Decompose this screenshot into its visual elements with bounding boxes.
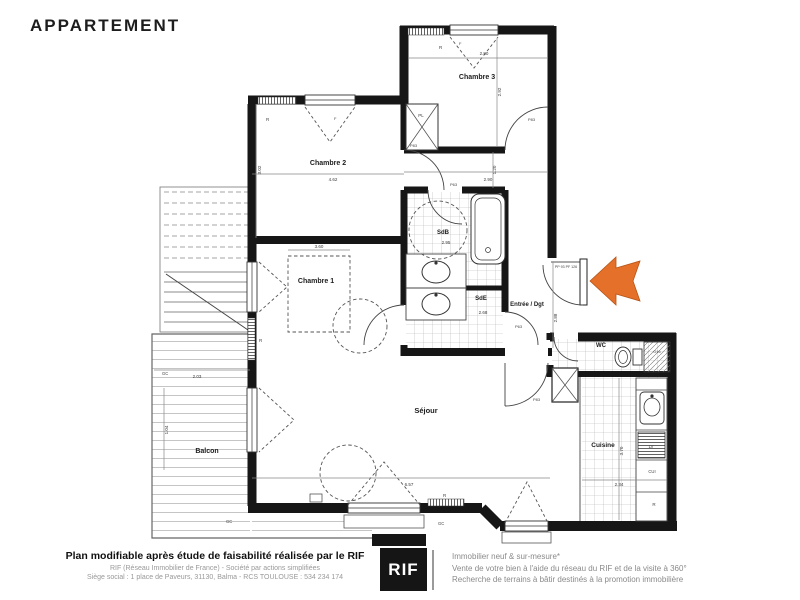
- footer-company-line2: Siège social : 1 place de Paveurs, 31130…: [60, 573, 370, 582]
- dim-sdb: 2.95: [442, 240, 451, 245]
- dim-bed: 3.60: [315, 244, 324, 249]
- window-chambre1: [247, 262, 287, 312]
- label-dishwasher: LV: [649, 444, 654, 449]
- dim-chambre3-w: 2.80: [480, 51, 489, 56]
- radiator-chambre2: [258, 97, 296, 104]
- bed-chambre1: [288, 256, 350, 332]
- label-radiator-ch3: R: [439, 45, 443, 50]
- label-window-ch2: F: [334, 116, 337, 121]
- door-chambre2: [404, 150, 444, 190]
- label-guardrail-3: GC: [438, 521, 444, 526]
- dim-hall-w: 2.90: [484, 177, 493, 182]
- dim-entree-h: 2.88: [553, 313, 558, 322]
- footer-company-line1: RIF (Réseau Immobilier de France) - Soci…: [60, 564, 370, 573]
- technical-shaft: [552, 368, 578, 402]
- rif-logo: RIF: [380, 548, 427, 591]
- window-cuisine-side: [502, 482, 551, 543]
- footer-left: Plan modifiable après étude de faisabili…: [60, 550, 370, 582]
- label-radiator-ch2: R: [266, 117, 270, 122]
- label-entree: Entrée / Dgt: [510, 302, 544, 308]
- dim-cuisine-w: 2.34: [615, 482, 624, 487]
- double-washbasin: [406, 254, 466, 320]
- dim-chambre2-h: 3.02: [257, 165, 262, 174]
- label-p63-sde: P63: [515, 324, 523, 329]
- circle-chambre1: [333, 299, 387, 353]
- dim-sejour-w: 6.57: [405, 482, 414, 487]
- label-cuisine: Cuisine: [591, 442, 615, 449]
- outlet-box: [310, 494, 322, 502]
- label-closet: PL: [418, 113, 424, 118]
- label-cooker: CUI: [648, 469, 655, 474]
- radiator-chambre3: [408, 28, 444, 35]
- dim-chambre2-w: 4.62: [329, 177, 338, 182]
- radiator-sejour: [428, 499, 464, 506]
- footer-service-1: Immobilier neuf & sur-mesure*: [452, 551, 687, 563]
- window-chambre3: [450, 25, 498, 68]
- label-guardrail-2: GC: [226, 519, 232, 524]
- dim-chambre3-h: 2.92: [497, 87, 502, 96]
- label-wc: WC: [596, 343, 607, 349]
- dim-balcon-h: 1.04: [164, 425, 169, 434]
- entrance-arrow: [590, 257, 640, 305]
- label-entry-door: PP 93 PF 126: [555, 265, 577, 269]
- window-chambre2: [305, 95, 355, 142]
- label-shaft: O16: [653, 350, 660, 354]
- page: { "header": { "title": "APPARTEMENT" }, …: [0, 0, 800, 600]
- dim-cuisine-h: 3.70: [619, 446, 624, 455]
- footer: Plan modifiable après étude de faisabili…: [0, 546, 800, 600]
- footer-separator: [432, 550, 434, 590]
- footer-service-2: Vente de votre bien à l'aide du réseau d…: [452, 563, 687, 575]
- exterior-stair: [160, 187, 250, 332]
- circle-sejour: [320, 445, 376, 501]
- wc-cabinet: [644, 342, 670, 372]
- label-radiator-sejour: R: [443, 493, 447, 498]
- bathtub: [471, 194, 505, 264]
- label-sdb: SdB: [437, 230, 450, 236]
- toilet: [615, 347, 642, 367]
- dim-sde: 2.68: [479, 310, 488, 315]
- label-p63-sdb: P63: [450, 182, 458, 187]
- label-radiator-ch1: R: [259, 338, 263, 343]
- dim-balcon-w: 2.03: [193, 374, 202, 379]
- kitchen-counter: [636, 378, 667, 521]
- label-balcon: Balcon: [195, 448, 218, 455]
- label-chambre3: Chambre 3: [459, 74, 495, 81]
- balcony-door-sejour: [247, 388, 294, 452]
- label-p83-ch2: P83: [410, 143, 418, 148]
- french-window-sejour: [344, 462, 424, 528]
- radiator-chambre1: [248, 318, 255, 360]
- label-guardrail-1: GC: [162, 371, 168, 376]
- label-p83-ch3: P83: [528, 117, 536, 122]
- pillar: [372, 534, 426, 546]
- label-chambre1: Chambre 1: [298, 278, 334, 285]
- label-sde: SdE: [475, 296, 487, 302]
- label-chambre2: Chambre 2: [310, 160, 346, 167]
- label-window-ch3: F: [459, 41, 462, 46]
- footer-right: Immobilier neuf & sur-mesure* Vente de v…: [452, 551, 687, 586]
- dim-hall-h: 1.20: [492, 165, 497, 174]
- door-sejour: [505, 363, 548, 406]
- label-p83-sejour: P83: [533, 397, 541, 402]
- footer-service-3: Recherche de terrains à bâtir destinés à…: [452, 574, 687, 586]
- footer-headline: Plan modifiable après étude de faisabili…: [60, 550, 370, 562]
- label-sejour: Séjour: [414, 406, 437, 415]
- floor-plan: Chambre 2 4.62 3.02 Chambre 1 3.60 Chamb…: [0, 0, 800, 546]
- door-chambre3: [505, 107, 548, 150]
